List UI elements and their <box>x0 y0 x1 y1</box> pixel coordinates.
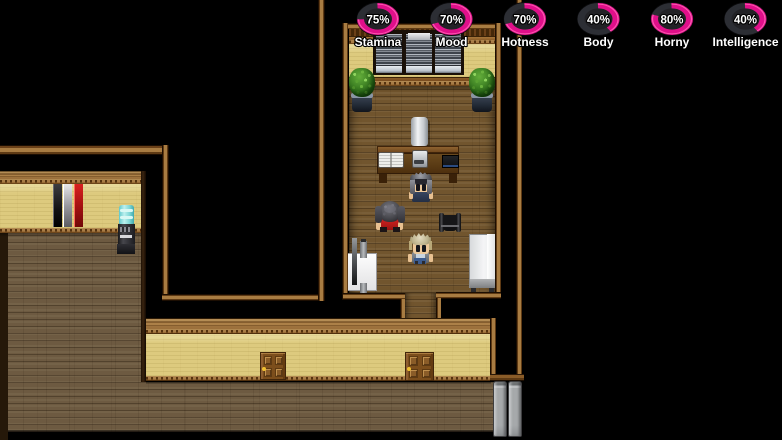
svg-text:40%: 40% <box>734 15 757 27</box>
svg-text:Hotness: Hotness <box>501 35 549 49</box>
svg-text:70%: 70% <box>440 15 463 27</box>
svg-text:Intelligence: Intelligence <box>712 35 778 49</box>
svg-text:Stamina: Stamina <box>355 35 402 49</box>
svg-text:Horny: Horny <box>655 35 690 49</box>
svg-text:Mood: Mood <box>436 35 468 49</box>
svg-text:75%: 75% <box>366 15 389 27</box>
svg-text:80%: 80% <box>660 15 683 27</box>
svg-text:40%: 40% <box>587 15 610 27</box>
svg-text:Body: Body <box>584 35 614 49</box>
svg-text:70%: 70% <box>513 15 536 27</box>
